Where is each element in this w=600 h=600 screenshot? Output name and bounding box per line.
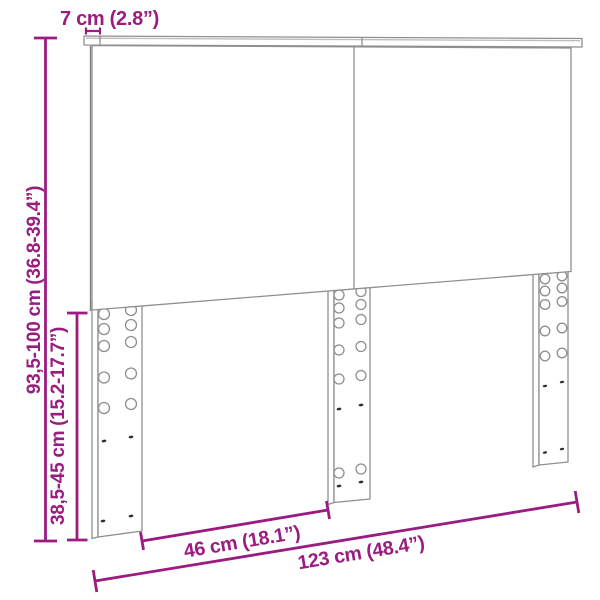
- headboard-dimension-diagram: 7 cm (2.8”) 93,5-100 cm (36.8-39.4”) 38,…: [0, 0, 600, 600]
- headboard-drawing: [84, 36, 582, 539]
- dimension-label-total-height: 93,5-100 cm (36.8-39.4”): [24, 186, 45, 394]
- middle-leg: [328, 285, 370, 505]
- headboard-panels: [91, 46, 572, 312]
- top-bar: [84, 36, 582, 47]
- dimension-line-total-width: [93, 491, 579, 592]
- right-leg: [533, 270, 568, 467]
- dimension-label-top-bar-depth: 7 cm (2.8”): [60, 8, 159, 30]
- dimension-label-leg-height: 38,5-45 cm (15.2-17.7”): [48, 327, 69, 525]
- left-leg: [92, 300, 142, 539]
- dimension-diagram-canvas: 7 cm (2.8”) 93,5-100 cm (36.8-39.4”) 38,…: [0, 0, 600, 600]
- dimension-line-leg-height: [67, 313, 88, 540]
